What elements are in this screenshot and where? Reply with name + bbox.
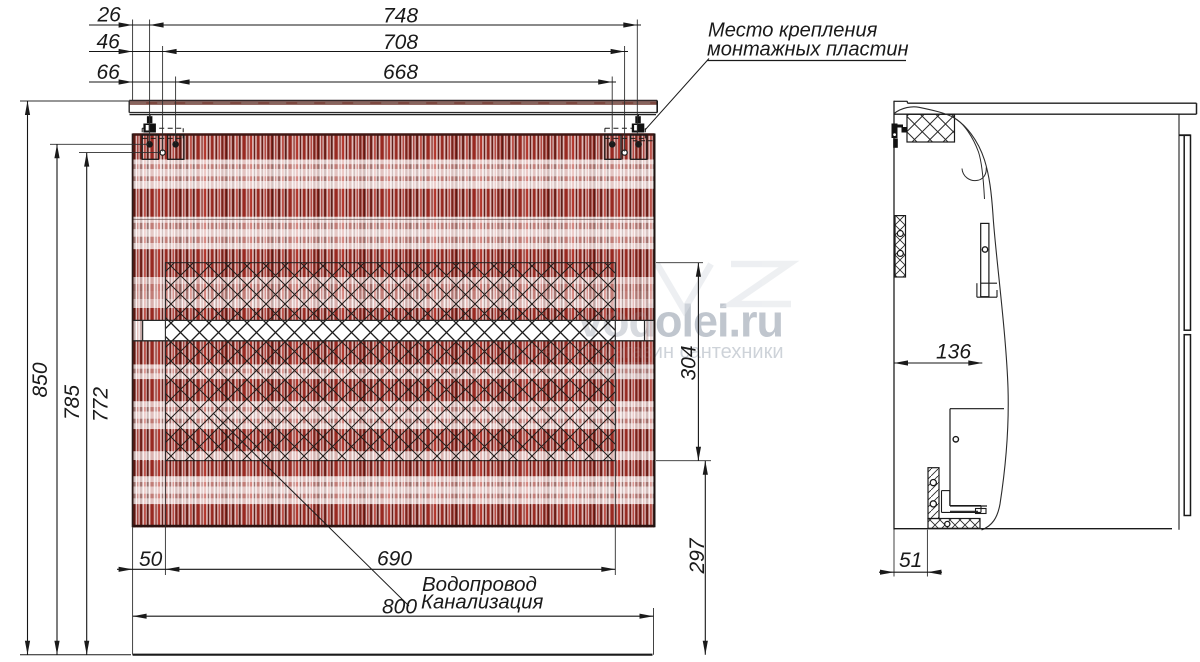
svg-text:748: 748 bbox=[383, 5, 418, 28]
svg-text:668: 668 bbox=[383, 61, 418, 84]
svg-text:850: 850 bbox=[29, 362, 52, 397]
svg-text:Канализация: Канализация bbox=[421, 592, 544, 614]
svg-text:66: 66 bbox=[97, 61, 121, 84]
svg-text:50: 50 bbox=[139, 548, 163, 571]
svg-text:785: 785 bbox=[61, 385, 84, 420]
svg-text:800: 800 bbox=[382, 596, 417, 619]
svg-text:46: 46 bbox=[97, 31, 121, 54]
svg-text:690: 690 bbox=[377, 548, 412, 571]
svg-text:26: 26 bbox=[97, 4, 122, 27]
svg-text:708: 708 bbox=[383, 31, 418, 54]
svg-text:51: 51 bbox=[899, 549, 922, 572]
svg-text:772: 772 bbox=[90, 387, 113, 422]
svg-text:297: 297 bbox=[686, 537, 709, 574]
svg-text:монтажных пластин: монтажных пластин bbox=[707, 39, 909, 61]
svg-text:136: 136 bbox=[936, 341, 971, 364]
svg-text:304: 304 bbox=[678, 345, 701, 380]
